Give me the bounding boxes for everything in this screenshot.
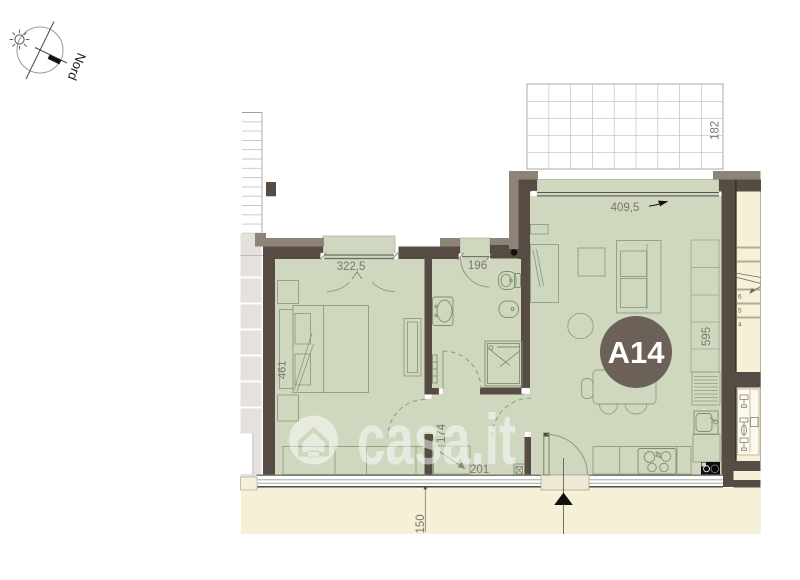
svg-text:196: 196 <box>468 260 487 272</box>
svg-text:595: 595 <box>701 327 713 346</box>
svg-text:461: 461 <box>277 361 289 379</box>
svg-text:182: 182 <box>710 121 722 140</box>
svg-text:casa.it: casa.it <box>357 400 516 480</box>
svg-text:150: 150 <box>415 514 427 533</box>
svg-text:409,5: 409,5 <box>611 202 640 214</box>
svg-text:4: 4 <box>738 322 742 329</box>
svg-text:6: 6 <box>738 294 742 301</box>
svg-text:5: 5 <box>738 308 742 315</box>
svg-text:A14: A14 <box>608 335 666 370</box>
svg-text:322,5: 322,5 <box>337 261 366 273</box>
